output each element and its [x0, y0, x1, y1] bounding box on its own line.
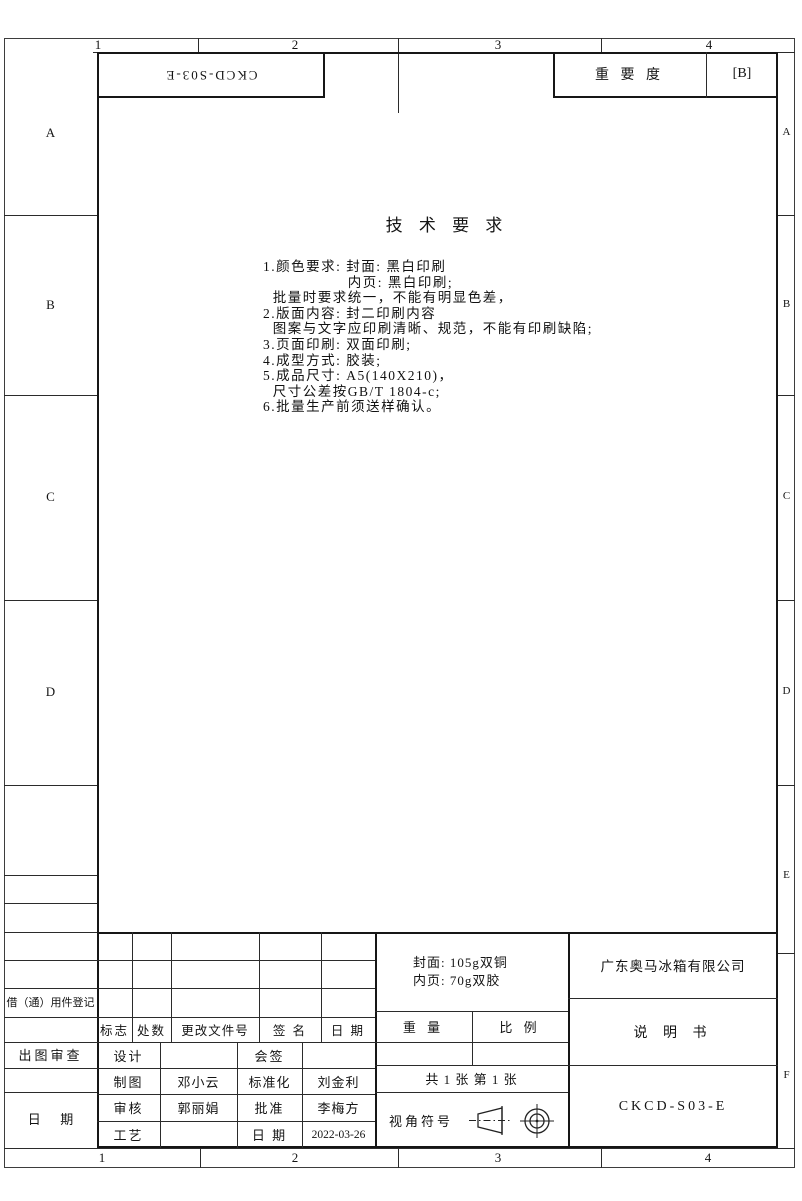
- zone-row-label: C: [778, 489, 795, 503]
- zone-row-label: D: [4, 684, 97, 700]
- tech-line: 2.版面内容: 封二印刷内容: [263, 306, 733, 322]
- check-name: 郭丽娟: [160, 1094, 237, 1121]
- materials-note: 封面: 105g双铜 内页: 70g双胶: [375, 932, 568, 1011]
- tech-line: 批量时要求统一，不能有明显色差，: [263, 290, 733, 306]
- first-angle-frustum-icon: [466, 1102, 516, 1139]
- tech-line: 3.页面印刷: 双面印刷;: [263, 337, 733, 353]
- tech-line: 6.批量生产前须送样确认。: [263, 399, 733, 415]
- top-band-divider: [601, 38, 602, 52]
- scale-label: 比 例: [472, 1011, 568, 1041]
- zone-col-label: 4: [700, 1150, 716, 1166]
- zone-row-label: A: [4, 125, 97, 141]
- tech-line: 5.成品尺寸: A5(140X210)，: [263, 368, 733, 384]
- revision-row-line: [97, 988, 375, 989]
- bottom-band-divider: [601, 1148, 602, 1168]
- left-margin-divider: [4, 932, 97, 933]
- zone-row-label: F: [778, 1068, 795, 1082]
- left-margin-divider: [4, 1042, 97, 1043]
- standardization-label: 标准化: [237, 1068, 302, 1094]
- left-margin-divider: [4, 785, 97, 786]
- mirrored-doc-code: CKCD-S03-E: [97, 52, 325, 98]
- materials-inner: 内页: 70g双胶: [413, 972, 500, 990]
- design-label: 设计: [97, 1042, 160, 1068]
- tech-line: 4.成型方式: 胶装;: [263, 353, 733, 369]
- tech-line: 内页: 黑白印刷;: [263, 275, 733, 291]
- zone-col-label: 2: [287, 38, 303, 52]
- approve-name: 李梅方: [302, 1094, 375, 1121]
- weight-label: 重 量: [375, 1011, 472, 1041]
- rev-header-count: 处数: [132, 1017, 171, 1042]
- bottom-band-divider: [398, 1148, 399, 1168]
- right-margin-divider: [778, 600, 795, 601]
- right-margin-divider: [778, 785, 795, 786]
- tech-requirements-title: 技 术 要 求: [300, 211, 594, 235]
- signoff-date-label: 日 期: [237, 1121, 302, 1148]
- top-band-divider: [198, 38, 199, 52]
- check-label: 审核: [97, 1094, 160, 1121]
- countersign-label: 会签: [237, 1042, 302, 1068]
- zone-row-label: C: [4, 489, 97, 505]
- plot-review-label: 出图审查: [4, 1046, 97, 1063]
- drawing-sheet: 1 2 3 4 1 2 3 4 A B C D 借（通）用件登记 出图审查 日 …: [0, 0, 802, 1201]
- zone-col-label: 2: [287, 1150, 303, 1166]
- right-margin-divider: [778, 215, 795, 216]
- left-margin-divider: [4, 1092, 97, 1093]
- doc-code: CKCD-S03-E: [568, 1065, 778, 1148]
- top-band-divider: [398, 38, 399, 52]
- right-margin-divider: [778, 953, 795, 954]
- left-margin-divider: [4, 1068, 97, 1069]
- revision-row-line: [97, 960, 375, 961]
- zone-col-label: 1: [94, 1150, 110, 1166]
- rev-header-file-no: 更改文件号: [171, 1017, 259, 1042]
- bottom-band-line: [4, 1148, 795, 1149]
- left-margin-divider: [4, 600, 97, 601]
- left-margin-divider: [4, 395, 97, 396]
- projection-target-icon: [518, 1102, 556, 1140]
- bottom-band-divider: [200, 1148, 201, 1168]
- left-date-label: 日 期: [4, 1110, 97, 1127]
- view-symbol-label: 视角符号: [383, 1112, 459, 1129]
- left-margin-divider: [4, 988, 97, 989]
- rev-header-date: 日 期: [321, 1017, 375, 1042]
- sheet-count: 共 1 张 第 1 张: [375, 1065, 568, 1092]
- company-name: 广东奥马冰箱有限公司: [568, 932, 778, 998]
- standardization-name: 刘金利: [302, 1068, 375, 1094]
- left-margin-divider: [4, 215, 97, 216]
- zone-row-label: E: [778, 868, 795, 882]
- approve-label: 批准: [237, 1094, 302, 1121]
- rev-header-mark: 标志: [97, 1017, 132, 1042]
- signoff-date-value: 2022-03-26: [302, 1121, 375, 1148]
- left-margin-divider: [4, 960, 97, 961]
- borrow-register-label: 借（通）用件登记: [4, 994, 97, 1010]
- zone-col-label: 3: [490, 1150, 506, 1166]
- craft-label: 工艺: [97, 1121, 160, 1148]
- zone-col-label: 1: [90, 38, 106, 52]
- importance-value: [B]: [706, 52, 778, 96]
- revision-row-line: [97, 1042, 568, 1043]
- rev-header-signature: 签 名: [259, 1017, 321, 1042]
- left-margin-divider: [4, 903, 97, 904]
- left-margin-divider: [4, 1017, 97, 1018]
- materials-cover: 封面: 105g双铜: [413, 954, 508, 972]
- doc-title: 说 明 书: [568, 998, 778, 1065]
- left-margin-divider: [4, 875, 97, 876]
- tech-line: 1.颜色要求: 封面: 黑白印刷: [263, 259, 733, 275]
- zone-col-label: 4: [701, 38, 717, 52]
- tech-line: 尺寸公差按GB/T 1804-c;: [263, 384, 733, 400]
- tech-line: 图案与文字应印刷清晰、规范，不能有印刷缺陷;: [263, 321, 733, 337]
- zone-row-label: A: [778, 125, 795, 139]
- mid-row-line: [375, 1092, 568, 1093]
- right-margin-divider: [778, 395, 795, 396]
- draft-label: 制图: [97, 1068, 160, 1094]
- draft-name: 邓小云: [160, 1068, 237, 1094]
- zone-row-label: B: [778, 297, 795, 311]
- importance-label: 重 要 度: [553, 52, 706, 96]
- zone-col-label: 3: [490, 38, 506, 52]
- zone-row-label: B: [4, 297, 97, 313]
- tech-requirements-body: 1.颜色要求: 封面: 黑白印刷 内页: 黑白印刷; 批量时要求统一，不能有明显…: [263, 259, 733, 421]
- zone-row-label: D: [778, 684, 795, 698]
